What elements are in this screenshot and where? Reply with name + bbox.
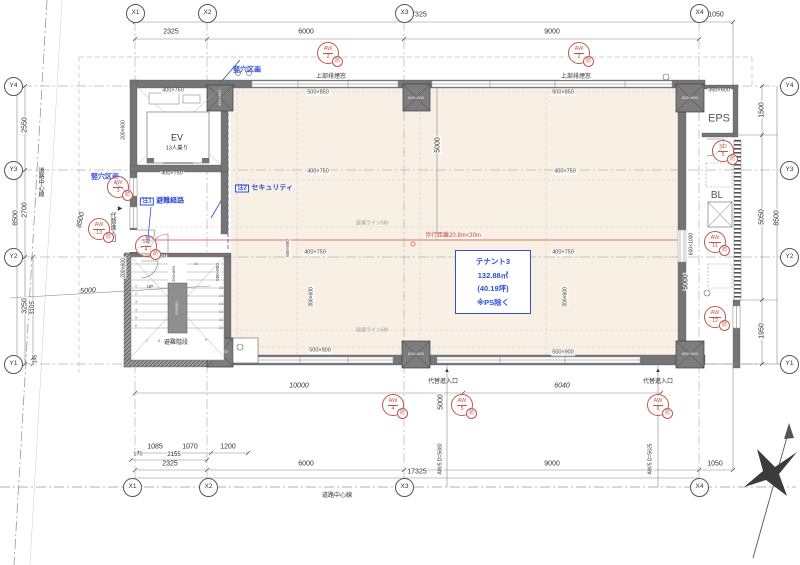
smoke-vent-window-label: 上部排煙窓 — [560, 74, 592, 80]
step-number: 12 — [219, 310, 223, 314]
tag-number: 2 — [574, 53, 583, 60]
grid-bubble-x4-bottom: X4 — [690, 478, 709, 497]
road-centerline-label-bottom: 道路中心線 — [321, 493, 353, 499]
dim-bot-1085: 1085 — [146, 444, 164, 451]
entry-arrow-icon: ▲ — [654, 368, 662, 374]
size-250x850: 250×850 — [172, 265, 176, 283]
floor-plan-canvas: X1 X2 X3 X4 X1 X2 X3 X4 Y4 Y3 Y2 Y1 Y4 Y… — [0, 0, 800, 565]
window-tag-aw13: AW13防 — [88, 218, 110, 240]
fire-badge: 防 — [727, 154, 738, 165]
size-550x850: 550×850 — [286, 238, 291, 258]
dim-left-145: 145 — [34, 354, 39, 364]
step-number: 11 — [219, 318, 223, 322]
size-400x750: 400×750 — [553, 169, 577, 175]
fire-badge: 防 — [583, 56, 594, 67]
tag-number: 4 — [388, 405, 397, 412]
size-450x850-column: 450×850 — [218, 89, 222, 107]
step-number: 14 — [219, 294, 223, 298]
alt-entry-label: 代替進入口 — [427, 379, 459, 385]
size-300x600: 300×600 — [310, 286, 315, 308]
stairs-kw150: KW150 — [175, 300, 179, 315]
step-number: 5 — [135, 316, 137, 320]
step-number: 2 — [135, 292, 137, 296]
north-arrow — [744, 423, 797, 558]
window-tag-aw2: AW2防 — [568, 42, 590, 64]
tag-number: 4 — [141, 246, 150, 253]
shaft-compartment-label: 竪穴区画 — [232, 67, 262, 74]
window-tag-aw3: AW3防 — [107, 176, 129, 198]
size-200x600: 200×600 — [122, 119, 127, 141]
dim-inner-5000-bottom: 5000 — [438, 393, 445, 411]
fire-spread-line-label: 延焼ライン5M — [355, 329, 389, 334]
room-eps: EPS — [707, 114, 731, 125]
size-500x850: 500×850 — [306, 90, 330, 96]
size-850x800-column: 850×800 — [211, 350, 229, 354]
size-600x1000: 600×1000 — [690, 232, 695, 256]
grid-bubble-x3-top: X3 — [395, 4, 414, 23]
dim-top-6000: 6000 — [297, 29, 315, 36]
dim-top-9000: 9000 — [543, 29, 561, 36]
dim-bot-1200: 1200 — [219, 444, 237, 451]
step-number: 3 — [135, 300, 137, 304]
dim-bot-6000: 6000 — [297, 461, 315, 468]
door-tag-sd4: SD4防 — [135, 235, 157, 257]
size-500x900: 500×900 — [308, 348, 332, 354]
step-number: 9 — [205, 338, 207, 342]
road-centerline-label-left: 道路中心線 — [36, 167, 44, 197]
step-number: 13 — [219, 302, 223, 306]
size-600x600-column: 600×600 — [407, 352, 425, 356]
tenant-area-m2: 132.88㎡ — [456, 269, 530, 283]
size-400x750: 400×750 — [160, 171, 184, 177]
dim-bot-9000: 9000 — [543, 461, 561, 468]
size-400x750: 400×750 — [551, 250, 575, 256]
dim-aw5-d5625: AW/5 D=5625 — [649, 442, 654, 475]
fire-badge: 防 — [662, 408, 673, 419]
floor-fills — [231, 88, 733, 355]
note2-tag: 注2 — [235, 185, 249, 193]
elevator-shaft — [137, 87, 221, 165]
fire-badge: 防 — [397, 408, 408, 419]
fire-badge: 防 — [103, 232, 114, 243]
dim-inner-10000: 10000 — [288, 383, 309, 390]
grid-bubble-y4-right: Y4 — [780, 77, 799, 96]
dim-right-5050: 5050 — [759, 208, 766, 226]
grid-bubble-y3-right: Y3 — [780, 161, 799, 180]
grid-bubble-x1-bottom: X1 — [123, 478, 142, 497]
step-number: 4 — [135, 308, 137, 312]
window-tag-aw11: AW11防 — [704, 231, 726, 253]
elevator-capacity: 13人乗り — [165, 146, 190, 152]
step-number: 16 — [194, 262, 198, 266]
window-tag-aw6: AW6防 — [647, 394, 669, 416]
alt-entry-label: 代替進入口 — [642, 379, 674, 385]
grid-bubble-x4-top: X4 — [690, 4, 709, 23]
tag-number: 5 — [718, 151, 727, 158]
window-tag-aw4: AW4防 — [382, 394, 404, 416]
size-550x850: 550×850 — [216, 262, 221, 282]
fire-badge: 防 — [150, 249, 161, 260]
tag-number: 5 — [457, 405, 466, 412]
fire-badge: 防 — [719, 245, 730, 256]
size-500x900: 500×900 — [551, 350, 575, 356]
dim-bot-17325: 17325 — [406, 469, 427, 476]
size-400x750: 400×750 — [303, 250, 327, 256]
fire-badge: 防 — [332, 56, 343, 67]
dim-inner-5000-right: 5000 — [683, 273, 690, 291]
dim-bot-1050: 1050 — [706, 461, 724, 468]
tag-number: 2 — [323, 53, 332, 60]
dim-bot-1070: 1070 — [181, 444, 199, 451]
dim-bot-2155: 2155 — [166, 452, 181, 458]
grid-bubble-y2-left: Y2 — [4, 248, 23, 267]
step-number: 1 — [135, 284, 137, 288]
stairs-up: UP — [146, 285, 154, 290]
step-number: 7 — [146, 339, 148, 343]
dim-top-2325: 2325 — [162, 29, 180, 36]
size-600x600-column: 600×600 — [681, 96, 699, 100]
size-200x600: 200×600 — [122, 257, 127, 279]
tenant-note: ※PS除く — [456, 296, 530, 310]
dim-right-1950: 1950 — [759, 322, 766, 340]
tenant-name: テナント3 — [456, 255, 530, 269]
note1-escape-route: 注1避難経路 — [139, 198, 185, 205]
window-tag-aw12: AW12防 — [704, 306, 726, 328]
dim-top-1050: 1050 — [707, 12, 725, 19]
size-400x750: 400×750 — [161, 88, 185, 94]
note2-text: セキュリティ — [251, 185, 293, 192]
dim-right-8500: 8500 — [774, 209, 781, 227]
step-number: 8 — [158, 339, 160, 343]
room-escape-stairs: 避難階段 — [163, 340, 189, 346]
grid-bubble-y3-left: Y3 — [4, 161, 23, 180]
tag-number: 3 — [113, 187, 122, 194]
note2-security: 注2セキュリティ — [234, 185, 294, 192]
dim-bot-2325: 2325 — [161, 461, 179, 468]
dim-left-3250: 3250 — [22, 297, 29, 315]
tenant-area-tsubo: (40.19坪) — [456, 282, 530, 296]
door-tag-sd5: SD5防 — [712, 140, 734, 162]
dim-inner-6040: 6040 — [553, 383, 571, 390]
tag-number: 6 — [653, 405, 662, 412]
fire-badge: 防 — [122, 190, 133, 201]
dim-right-1500: 1500 — [759, 101, 766, 119]
tenant-info-box: テナント3 132.88㎡ (40.19坪) ※PS除く — [455, 250, 531, 314]
step-number: 10 — [219, 326, 223, 330]
dim-left-2550: 2550 — [22, 116, 29, 134]
fire-spread-line-label: 延焼ライン5M — [355, 222, 389, 227]
size-500x850: 500×850 — [551, 90, 575, 96]
grid-bubble-y1-right: Y1 — [780, 355, 799, 374]
dim-left-8500: 8500 — [13, 209, 20, 227]
dim-bot-170: 170 — [132, 452, 143, 458]
entry-arrow-icon: ▶ — [117, 206, 124, 212]
grid-bubble-x2-top: X2 — [198, 4, 217, 23]
dim-left-3105: 3105 — [30, 300, 36, 315]
grid-bubble-y1-left: Y1 — [4, 355, 23, 374]
dim-left-2700: 2700 — [22, 201, 29, 219]
walk-distance-label: 歩行距離20.8m<30m — [424, 233, 482, 239]
fire-badge: 防 — [719, 320, 730, 331]
note1-tag: 注1 — [140, 198, 154, 206]
size-400x750: 400×750 — [306, 169, 330, 175]
note1-text: 避難経路 — [156, 198, 184, 205]
size-600x600-column: 600×600 — [407, 96, 425, 100]
dim-inner-5000-top: 5000 — [435, 136, 442, 154]
window-tag-aw5: AW5防 — [451, 394, 473, 416]
fire-badge: 防 — [466, 408, 477, 419]
dim-road-5000: 5000 — [79, 287, 97, 295]
step-number: 6 — [135, 324, 137, 328]
grid-bubble-x3-bottom: X3 — [395, 478, 414, 497]
grid-bubble-x1-top: X1 — [126, 4, 145, 23]
room-elevator: EV — [170, 134, 184, 143]
size-600x600-column: 600×600 — [681, 352, 699, 356]
entry-arrow-icon: ▲ — [443, 368, 451, 374]
size-350x600: 350×600 — [707, 88, 731, 94]
smoke-vent-window-label: 上部排煙窓 — [315, 74, 347, 80]
room-bl: BL — [710, 191, 724, 201]
grid-bubble-y4-left: Y4 — [4, 77, 23, 96]
size-300x600: 300×600 — [564, 286, 569, 308]
grid-bubble-y2-right: Y2 — [780, 248, 799, 267]
grid-bubble-x2-bottom: X2 — [199, 478, 218, 497]
dim-aw5-d5680: AW/5 D=5680 — [439, 442, 444, 475]
step-number: 15 — [219, 286, 223, 290]
window-tag-aw2: AW2防 — [317, 42, 339, 64]
